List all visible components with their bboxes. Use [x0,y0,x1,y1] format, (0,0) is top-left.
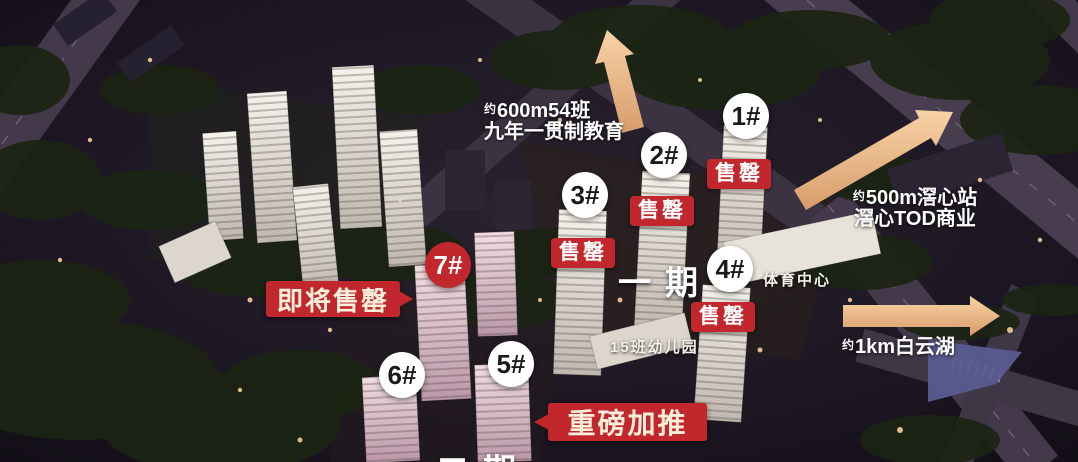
kindergarten-label: 15班幼儿园 [610,336,699,357]
education-distance: 600m54班 [497,100,590,122]
building-marker-5: 5# [488,341,534,387]
coming-soon-callout: 即将售罄 [266,281,400,317]
new-release-callout: 重磅加推 [548,403,707,441]
status-badge-building-4: 售罄 [691,302,755,332]
aerial-site-plan: 1# 2# 3# 4# 5# 6# 7# 售罄 售罄 售罄 售罄 即将售罄 重磅… [0,0,1078,462]
education-note-line1: 约600m54班 [484,99,624,122]
coming-soon-label: 即将售罄 [277,281,389,318]
tod-note: 约500m滘心站 滘心TOD商业 [845,186,985,230]
education-note-line2: 九年一贯制教育 [484,122,624,143]
phase2-label: 二期 [436,444,530,462]
lake-distance: 1km白云湖 [855,336,955,358]
building-marker-1: 1# [723,93,769,139]
status-badge-building-1: 售罄 [707,159,771,189]
new-release-label: 重磅加推 [567,402,687,442]
callout-pointer-right [399,291,413,307]
phase1-label: 一期 [618,256,712,304]
sports-center-label: 体育中心 [763,269,831,290]
status-badge-building-2: 售罄 [630,196,694,226]
callout-pointer-left [534,414,549,430]
building-marker-3: 3# [562,172,608,218]
education-note: 约600m54班 九年一贯制教育 [484,99,624,143]
approx-prefix: 约 [842,338,854,352]
night-aerial-background [0,0,1078,462]
building-marker-7: 7# [425,242,471,288]
tod-distance: 500m滘心站 [866,187,977,209]
approx-prefix: 约 [853,189,865,203]
approx-prefix: 约 [484,102,496,116]
tod-note-line2: 滘心TOD商业 [845,209,985,230]
building-marker-6: 6# [379,352,425,398]
lake-note: 约1km白云湖 [842,335,955,358]
building-marker-4: 4# [707,246,753,292]
tod-note-line1: 约500m滘心站 [845,186,985,209]
building-marker-2: 2# [641,132,687,178]
status-badge-building-3: 售罄 [551,238,615,268]
